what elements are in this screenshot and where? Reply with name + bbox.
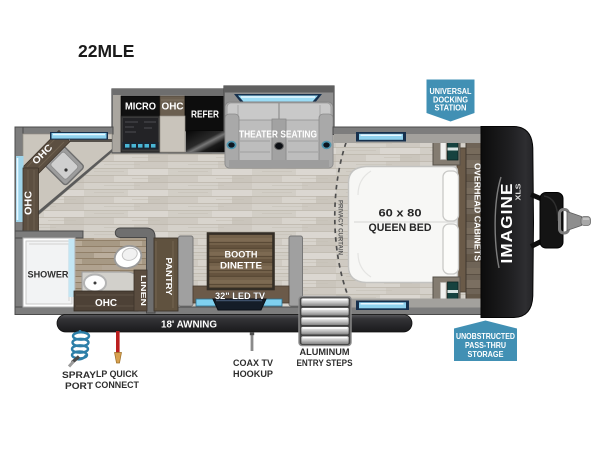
- svg-text:REFER: REFER: [191, 110, 220, 121]
- svg-text:LP QUICK: LP QUICK: [96, 369, 138, 380]
- svg-text:LINEN: LINEN: [139, 275, 148, 306]
- svg-text:THEATER SEATING: THEATER SEATING: [239, 129, 317, 141]
- svg-text:18' AWNING: 18' AWNING: [161, 320, 217, 331]
- svg-text:CONNECT: CONNECT: [95, 380, 139, 391]
- svg-text:ALUMINUM: ALUMINUM: [300, 347, 350, 358]
- svg-text:QUEEN BED: QUEEN BED: [369, 222, 432, 234]
- svg-text:MICRO: MICRO: [125, 102, 156, 113]
- svg-text:32" LED TV: 32" LED TV: [215, 291, 266, 302]
- svg-text:SPRAY: SPRAY: [62, 370, 97, 381]
- svg-text:OHC: OHC: [162, 102, 184, 113]
- svg-text:SHOWER: SHOWER: [28, 270, 69, 281]
- svg-text:COAX TV: COAX TV: [233, 358, 274, 369]
- svg-text:HOOKUP: HOOKUP: [233, 369, 274, 380]
- svg-text:22MLE: 22MLE: [78, 41, 134, 61]
- svg-text:PASS-THRU: PASS-THRU: [465, 341, 506, 350]
- svg-text:STORAGE: STORAGE: [468, 350, 504, 359]
- svg-text:ENTRY STEPS: ENTRY STEPS: [297, 358, 354, 369]
- svg-text:PORT: PORT: [65, 381, 93, 392]
- svg-text:XLS: XLS: [516, 183, 523, 200]
- svg-text:60 x 80: 60 x 80: [379, 208, 422, 220]
- svg-text:BOOTH: BOOTH: [225, 250, 258, 261]
- svg-text:DINETTE: DINETTE: [220, 261, 263, 272]
- svg-text:OHC: OHC: [95, 297, 117, 309]
- svg-text:PANTRY: PANTRY: [164, 258, 174, 296]
- svg-text:STATION: STATION: [435, 104, 467, 113]
- svg-text:IMAGINE: IMAGINE: [499, 183, 516, 264]
- svg-text:OHC: OHC: [24, 191, 35, 215]
- svg-text:UNOBSTRUCTED: UNOBSTRUCTED: [456, 332, 515, 341]
- svg-text:PRIVACY CURTAIN: PRIVACY CURTAIN: [337, 200, 344, 255]
